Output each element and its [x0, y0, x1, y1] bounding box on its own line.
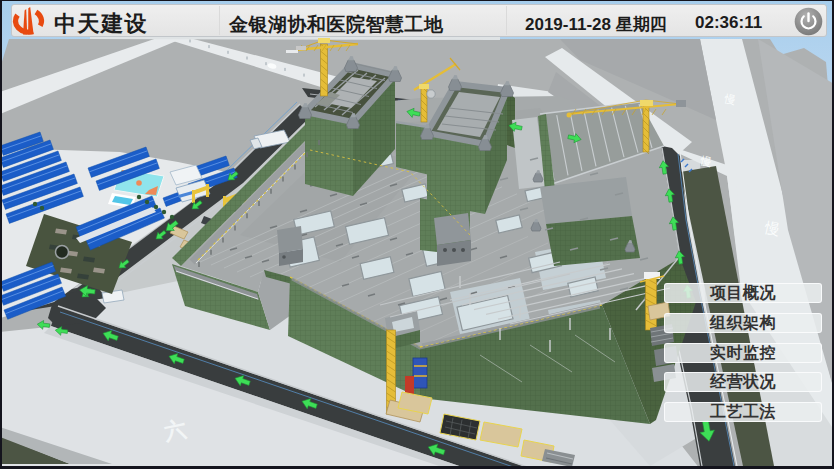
svg-text:慢: 慢: [723, 92, 737, 106]
svg-text:慢: 慢: [699, 154, 713, 168]
